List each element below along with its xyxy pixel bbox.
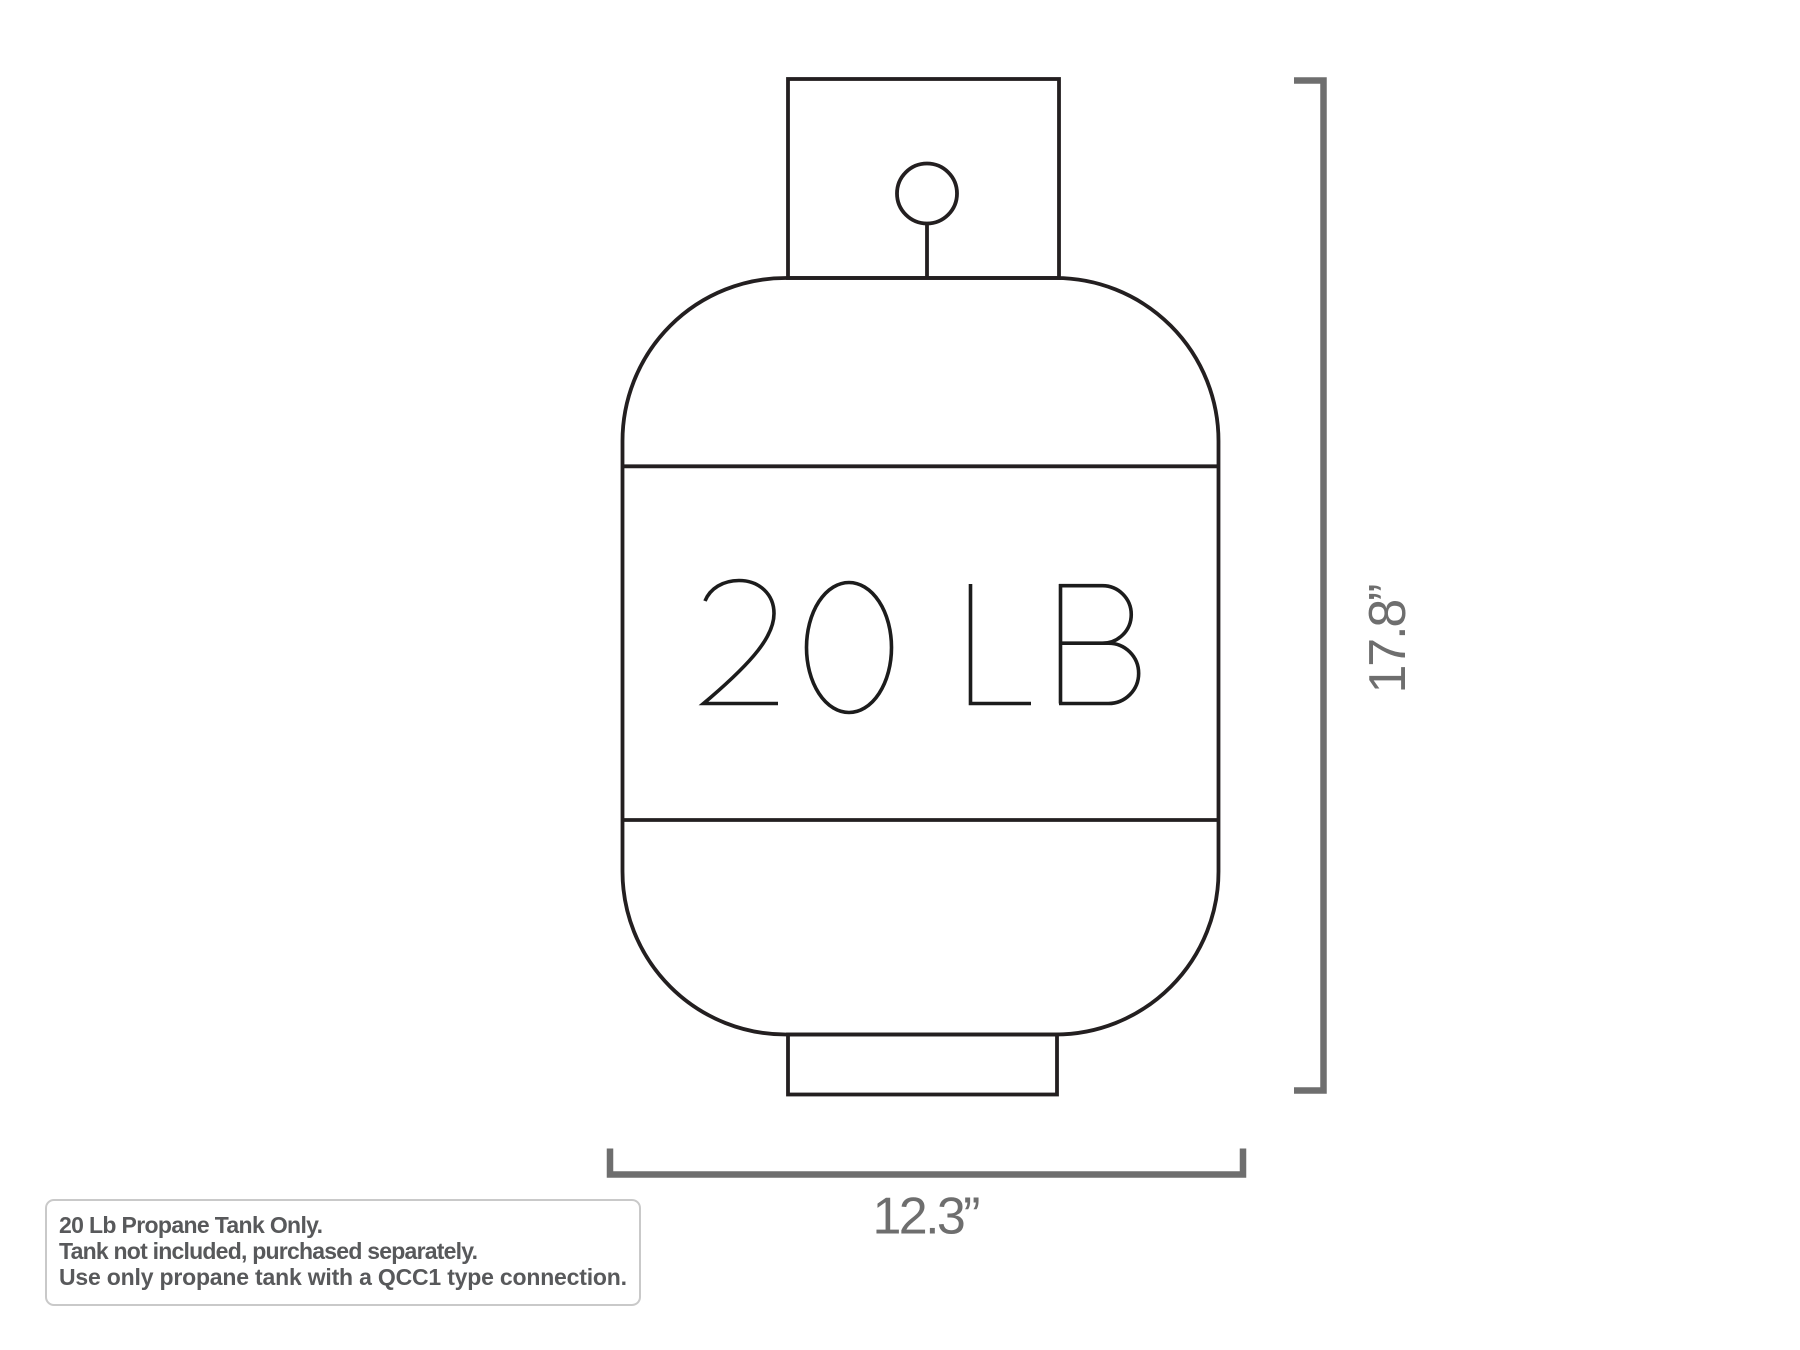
svg-text:Tank not included, purchased s: Tank not included, purchased separately. [59, 1238, 478, 1264]
svg-text:20 Lb Propane Tank Only.: 20 Lb Propane Tank Only. [59, 1212, 323, 1238]
svg-text:Use only propane tank with a Q: Use only propane tank with a QCC1 type c… [59, 1264, 627, 1290]
svg-text:17.8”: 17.8” [1359, 584, 1417, 694]
svg-text:12.3”: 12.3” [873, 1188, 981, 1246]
